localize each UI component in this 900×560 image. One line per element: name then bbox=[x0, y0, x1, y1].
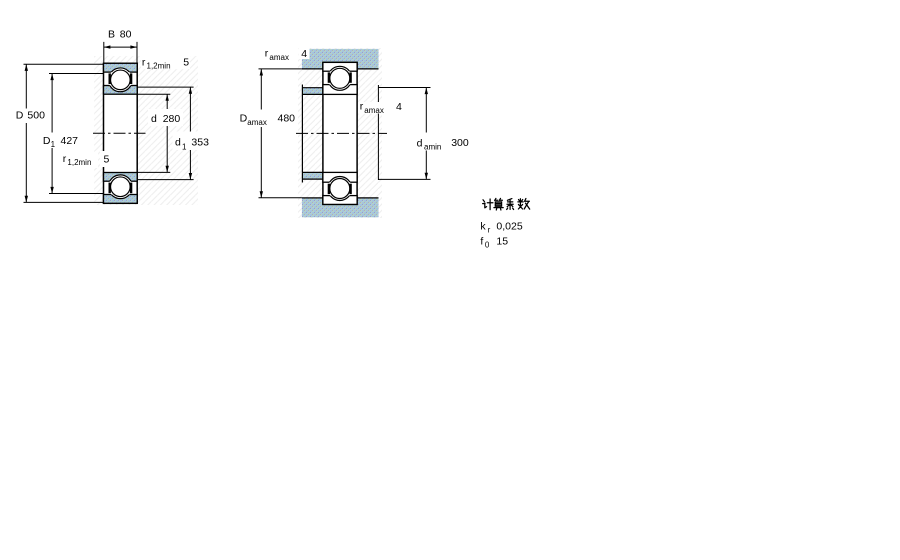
svg-text:r: r bbox=[63, 153, 67, 165]
svg-text:d: d bbox=[417, 138, 423, 150]
svg-text:5: 5 bbox=[183, 57, 189, 69]
svg-text:0,025: 0,025 bbox=[496, 221, 522, 233]
svg-text:280: 280 bbox=[163, 113, 181, 125]
svg-text:r: r bbox=[360, 101, 364, 113]
svg-text:500: 500 bbox=[27, 110, 45, 122]
svg-text:d: d bbox=[175, 136, 181, 148]
svg-text:300: 300 bbox=[451, 137, 469, 149]
svg-text:0: 0 bbox=[485, 241, 490, 250]
svg-text:r: r bbox=[488, 226, 491, 235]
svg-text:B: B bbox=[108, 29, 115, 41]
svg-text:480: 480 bbox=[278, 113, 296, 125]
svg-text:1: 1 bbox=[51, 140, 56, 149]
svg-text:1: 1 bbox=[182, 142, 187, 151]
svg-text:5: 5 bbox=[104, 154, 110, 166]
svg-text:k: k bbox=[480, 221, 486, 233]
svg-text:427: 427 bbox=[61, 135, 79, 147]
svg-text:15: 15 bbox=[496, 236, 508, 248]
svg-text:4: 4 bbox=[396, 101, 402, 113]
svg-text:r: r bbox=[265, 48, 269, 60]
svg-text:353: 353 bbox=[191, 136, 209, 148]
svg-text:D: D bbox=[16, 110, 24, 122]
svg-text:amin: amin bbox=[424, 143, 441, 152]
svg-text:80: 80 bbox=[120, 29, 132, 41]
svg-text:4: 4 bbox=[301, 48, 307, 60]
svg-text:1,2min: 1,2min bbox=[67, 158, 91, 167]
svg-text:r: r bbox=[142, 57, 146, 69]
svg-text:d: d bbox=[151, 113, 157, 125]
svg-text:f: f bbox=[480, 236, 483, 248]
svg-text:amax: amax bbox=[364, 106, 384, 115]
svg-text:1,2min: 1,2min bbox=[147, 61, 171, 70]
svg-text:amax: amax bbox=[269, 53, 289, 62]
svg-text:amax: amax bbox=[247, 118, 267, 127]
